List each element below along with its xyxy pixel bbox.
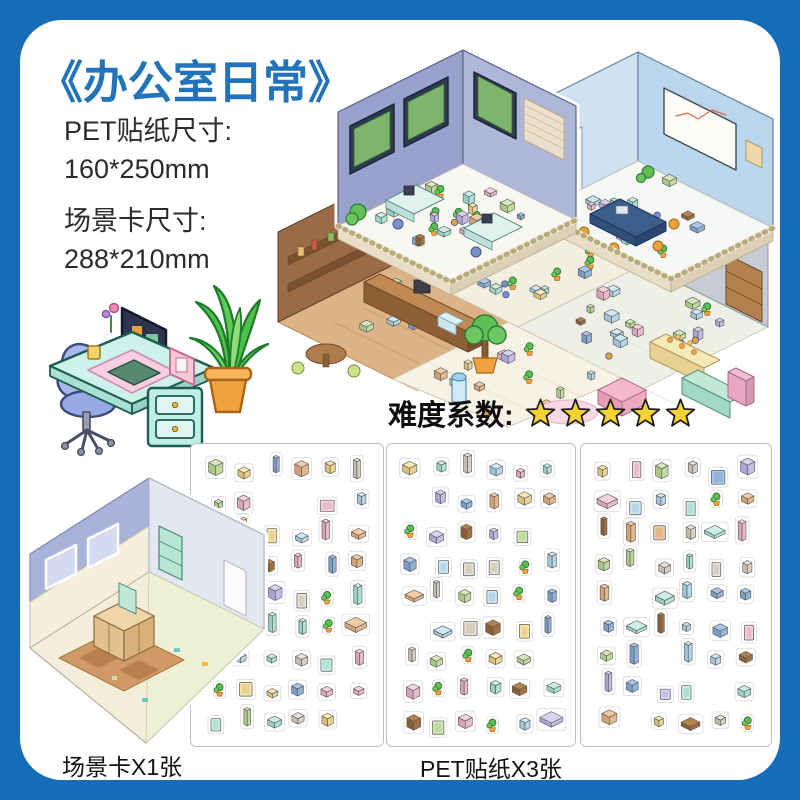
star-icon bbox=[595, 398, 626, 429]
pet-size-label: PET贴纸尺寸: bbox=[64, 112, 232, 150]
sticker-count-label: PET贴纸X3张 bbox=[420, 750, 562, 784]
scene-card-size-label: 场景卡尺寸: bbox=[64, 202, 232, 240]
star-icon bbox=[665, 398, 696, 429]
scene-card-illustration bbox=[24, 448, 288, 748]
product-image: { "colors": { "frame_blue": "#176cb8", "… bbox=[0, 0, 800, 800]
difficulty-label: 难度系数: bbox=[388, 392, 514, 434]
sticker-sheet-2 bbox=[386, 443, 576, 747]
difficulty-row: 难度系数: bbox=[388, 392, 696, 434]
spec-text-block: PET贴纸尺寸: 160*250mm 场景卡尺寸: 288*210mm bbox=[64, 112, 232, 278]
star-icon bbox=[560, 398, 591, 429]
pet-size-value: 160*250mm bbox=[64, 150, 232, 188]
scene-card-count-label: 场景卡X1张 bbox=[62, 748, 182, 782]
difficulty-stars bbox=[525, 398, 696, 429]
plant-illustration bbox=[186, 280, 270, 430]
star-icon bbox=[630, 398, 661, 429]
scene-card-size-value: 288*210mm bbox=[64, 240, 232, 278]
sticker-sheet-3 bbox=[580, 443, 772, 747]
star-icon bbox=[525, 398, 556, 429]
office-scene-illustration bbox=[268, 22, 776, 442]
